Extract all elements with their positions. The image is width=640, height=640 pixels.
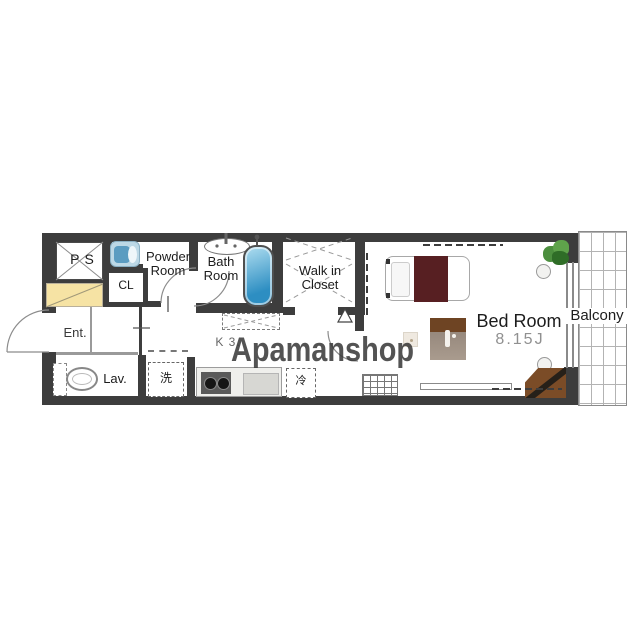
room-label-bath: Bath Room <box>195 255 247 283</box>
bed-icon <box>385 256 470 301</box>
entry-slope-highlight <box>46 283 103 307</box>
plant-leaf <box>552 251 569 265</box>
fridge-label: 冷 <box>286 376 316 388</box>
wic-line1: Walk in <box>285 264 355 278</box>
entrance-door-arc <box>7 310 49 352</box>
dresser-knob <box>452 334 456 338</box>
plant-icon <box>543 240 571 266</box>
bath-line2: Room <box>195 269 247 283</box>
room-label-walk-in-closet: Walk in Closet <box>285 264 355 292</box>
washer-label: 洗 <box>148 372 184 385</box>
burner-icon <box>204 377 217 390</box>
floorplan-canvas: PS Powder Room CL Bath Room Walk in Clos… <box>0 0 640 640</box>
powder-line1: Powder <box>140 250 196 264</box>
hallway-storage-hatch <box>222 313 280 330</box>
wall-bath-bottom <box>196 303 283 313</box>
room-label-bedroom: Bed Room <box>474 312 564 331</box>
powder-line2: Room <box>140 264 196 278</box>
washbasin-icon <box>110 241 140 267</box>
desk-stripe <box>525 368 566 398</box>
wall-wic-bottom-left <box>283 307 295 315</box>
wall-kitchen-stub <box>187 357 195 398</box>
toilet-tank-icon <box>53 363 67 396</box>
dresser-icon <box>430 318 466 360</box>
room-label-entrance: Ent. <box>56 326 94 340</box>
watermark-text: Apamanshop <box>231 331 414 370</box>
wall-wic-bedroom-divider <box>355 233 365 307</box>
room-label-cl: CL <box>107 279 145 292</box>
room-label-ps: PS <box>56 252 108 267</box>
dresser-handle <box>445 330 450 347</box>
room-label-balcony: Balcony <box>565 308 629 324</box>
room-label-powder: Powder Room <box>140 250 196 278</box>
burner-icon <box>217 377 230 390</box>
wall-corridor-vertical <box>139 307 142 355</box>
corner-desk-icon <box>525 368 566 398</box>
bed-pillow <box>391 262 410 297</box>
stool-icon <box>536 264 551 279</box>
toilet-icon <box>66 367 98 391</box>
wall-bedroom-door-stub <box>355 307 364 331</box>
kitchen-counter <box>196 367 282 397</box>
bed-corner <box>386 293 390 298</box>
low-shelf-icon <box>420 383 512 390</box>
kitchen-sink-icon <box>243 373 279 395</box>
bed-blanket <box>414 256 448 302</box>
bath-line1: Bath <box>195 255 247 269</box>
washer-area-dash-line <box>148 350 188 352</box>
stove-icon <box>201 372 231 394</box>
room-label-lavatory: Lav. <box>96 372 134 386</box>
entry-step-line <box>56 352 138 355</box>
bed-corner <box>386 259 390 264</box>
bathtub-icon <box>243 245 274 307</box>
toilet-seat <box>72 373 92 385</box>
wall-right-lower <box>564 367 578 405</box>
washbasin-rim <box>128 246 137 263</box>
floor-mat-grid-icon <box>362 374 398 396</box>
bedroom-size-label: 8.15J <box>480 331 560 348</box>
wic-line2: Closet <box>285 278 355 292</box>
wall-lav-right <box>138 355 146 398</box>
